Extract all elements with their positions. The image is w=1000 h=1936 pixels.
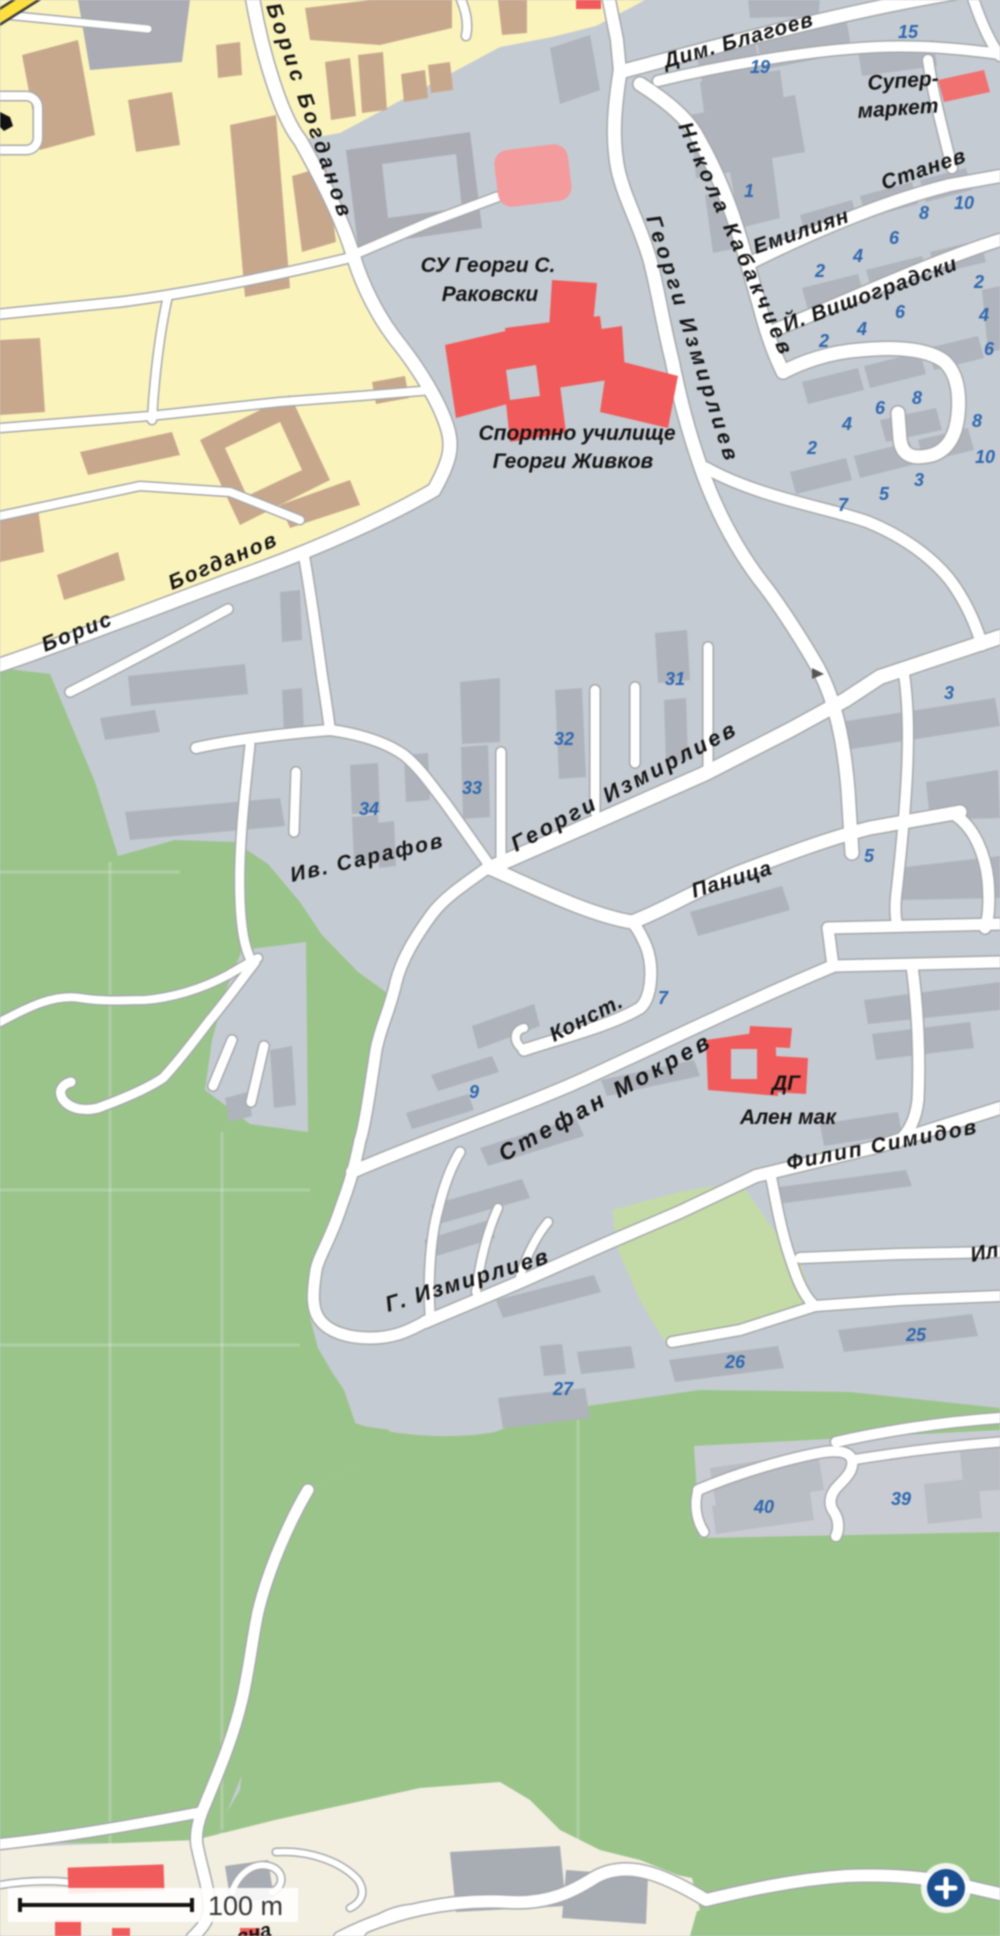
svg-text:8: 8	[912, 388, 922, 408]
svg-text:Георги Живков: Георги Живков	[493, 450, 654, 473]
svg-text:7: 7	[838, 495, 849, 515]
svg-text:1: 1	[744, 181, 754, 201]
svg-text:4: 4	[856, 319, 867, 339]
svg-text:3: 3	[944, 683, 954, 703]
svg-text:ДГ: ДГ	[770, 1072, 801, 1095]
svg-text:5: 5	[864, 846, 875, 866]
svg-text:15: 15	[898, 22, 919, 42]
svg-text:27: 27	[552, 1379, 574, 1399]
svg-text:26: 26	[724, 1352, 746, 1372]
svg-text:34: 34	[359, 799, 379, 819]
svg-text:10: 10	[975, 447, 995, 467]
svg-text:5: 5	[879, 484, 890, 504]
svg-text:100 m: 100 m	[208, 1891, 283, 1921]
svg-text:Спортно училище: Спортно училище	[478, 422, 675, 445]
svg-text:9: 9	[469, 1082, 479, 1102]
svg-text:2: 2	[814, 261, 825, 281]
svg-text:31: 31	[665, 669, 685, 689]
svg-text:39: 39	[891, 1489, 911, 1509]
svg-text:2: 2	[806, 438, 817, 458]
svg-text:6: 6	[984, 339, 995, 359]
svg-text:8: 8	[919, 203, 929, 223]
svg-text:4: 4	[852, 246, 863, 266]
svg-text:2: 2	[818, 331, 829, 351]
svg-text:7: 7	[658, 988, 669, 1008]
svg-text:6: 6	[895, 302, 906, 322]
svg-text:4: 4	[841, 414, 852, 434]
svg-text:32: 32	[554, 729, 574, 749]
svg-text:8: 8	[972, 411, 982, 431]
svg-text:2: 2	[973, 272, 984, 292]
svg-text:3: 3	[914, 470, 924, 490]
svg-text:10: 10	[954, 193, 974, 213]
svg-text:6: 6	[889, 228, 900, 248]
svg-text:40: 40	[753, 1497, 774, 1517]
svg-text:19: 19	[750, 57, 770, 77]
svg-text:СУ Георги С.: СУ Георги С.	[421, 254, 556, 277]
svg-text:6: 6	[875, 398, 886, 418]
svg-text:Раковски: Раковски	[442, 283, 539, 306]
svg-text:4: 4	[978, 305, 989, 325]
svg-text:25: 25	[905, 1325, 927, 1345]
svg-text:Ален мак: Ален мак	[739, 1106, 837, 1129]
svg-text:33: 33	[462, 778, 482, 798]
